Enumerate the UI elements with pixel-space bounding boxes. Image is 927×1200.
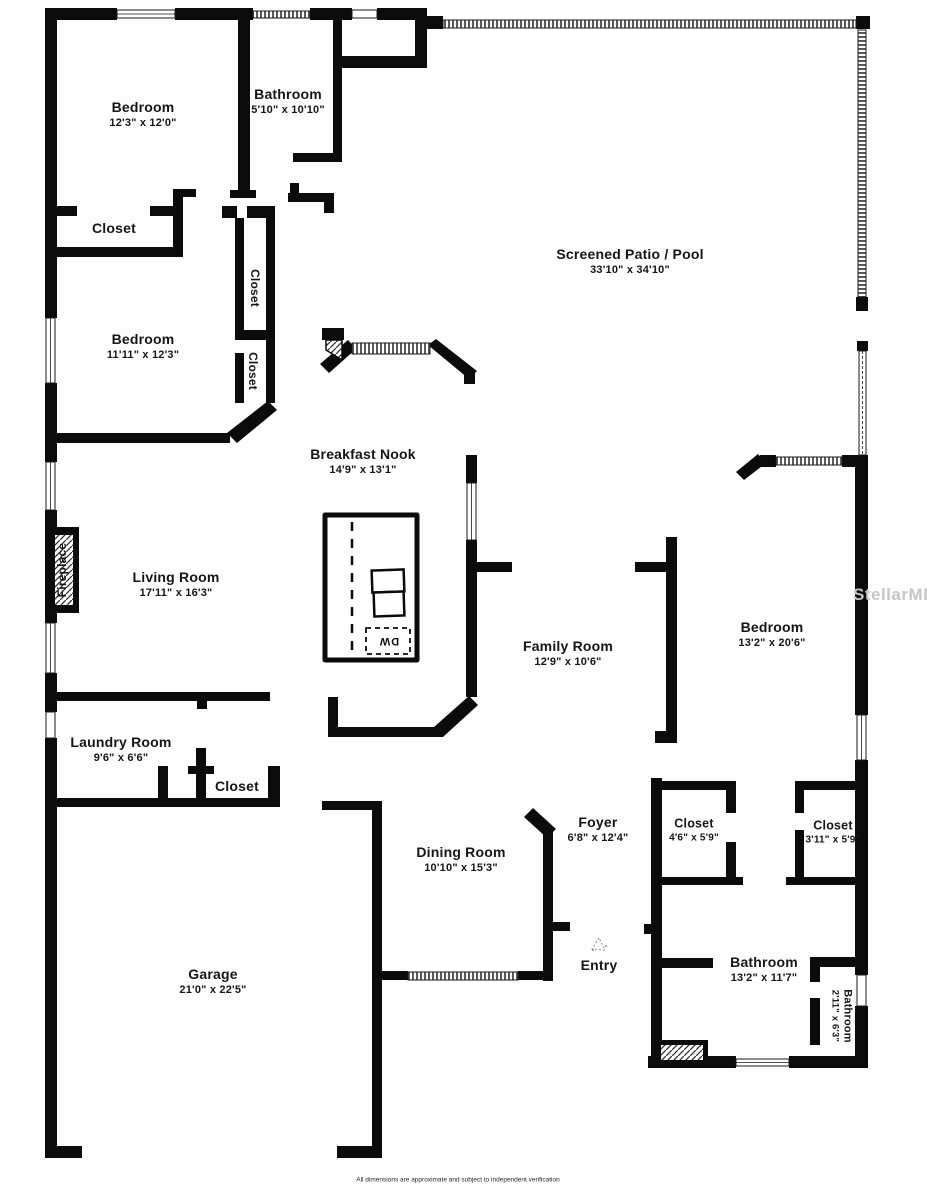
room-label-laundry-room: Laundry Room 9'6" x 6'6" xyxy=(70,733,171,765)
room-label-bathroom-3: Bathroom 2'11" x 6'3" xyxy=(828,989,855,1043)
sink-icon xyxy=(372,569,405,616)
room-dims: 5'10" x 10'10" xyxy=(251,103,325,117)
room-name: Bedroom xyxy=(112,330,175,348)
room-label-foyer: Foyer 6'8" x 12'4" xyxy=(568,813,629,845)
room-label-closet-1: Closet xyxy=(92,219,136,237)
disclaimer-text: All dimensions are approximate and subje… xyxy=(356,1177,559,1184)
room-name: Laundry Room xyxy=(70,733,171,751)
diagonal-walls xyxy=(227,339,766,838)
room-dims: 4'6" x 5'9" xyxy=(669,832,719,845)
room-dims: 14'9" x 13'1" xyxy=(329,463,396,477)
room-dims: 2'11" x 6'3" xyxy=(828,990,840,1042)
room-dims: 10'10" x 15'3" xyxy=(424,861,498,875)
floorplan: Bedroom 12'3" x 12'0" Bathroom 5'10" x 1… xyxy=(0,0,927,1200)
entry-marker-icon xyxy=(592,938,607,951)
room-dims: 12'9" x 10'6" xyxy=(534,655,601,669)
room-name: Family Room xyxy=(523,637,613,655)
room-label-closet-3: Closet xyxy=(244,352,260,390)
room-name: Closet xyxy=(244,352,260,390)
room-label-living-room: Living Room 17'11" x 16'3" xyxy=(133,568,220,600)
room-name: Bedroom xyxy=(112,98,175,116)
room-dims: 11'11" x 12'3" xyxy=(107,348,179,362)
room-dims: 13'2" x 20'6" xyxy=(738,636,805,650)
room-label-garage: Garage 21'0" x 22'5" xyxy=(179,965,246,997)
room-name: Dining Room xyxy=(416,843,505,861)
room-dims: 21'0" x 22'5" xyxy=(179,983,246,997)
room-dims: 13'2" x 11'7" xyxy=(731,971,798,985)
room-label-bedroom-1: Bedroom 12'3" x 12'0" xyxy=(109,98,176,130)
room-label-screened-patio-pool: Screened Patio / Pool 33'10" x 34'10" xyxy=(556,245,703,277)
room-name: Closet xyxy=(246,269,262,307)
room-name: Entry xyxy=(581,956,618,974)
room-name: Breakfast Nook xyxy=(310,445,416,463)
room-name: Bathroom xyxy=(840,989,854,1043)
room-name: Garage xyxy=(188,965,237,983)
room-dims: 6'8" x 12'4" xyxy=(568,831,629,845)
room-label-breakfast-nook: Breakfast Nook 14'9" x 13'1" xyxy=(310,445,416,477)
room-dims: 3'11" x 5'9" xyxy=(805,834,860,847)
room-name: Closet xyxy=(813,817,852,833)
fireplace-label: Fireplace xyxy=(55,543,71,598)
room-label-closet-laundry: Closet xyxy=(215,777,259,795)
room-name: Closet xyxy=(215,777,259,795)
room-label-bathroom-1: Bathroom 5'10" x 10'10" xyxy=(251,85,325,117)
dishwasher-label: DW xyxy=(379,635,399,647)
room-name: Closet xyxy=(92,219,136,237)
room-name: Screened Patio / Pool xyxy=(556,245,703,263)
room-dims: 17'11" x 16'3" xyxy=(140,586,213,600)
room-label-bathroom-2: Bathroom 13'2" x 11'7" xyxy=(730,953,798,985)
room-label-bedroom-3: Bedroom 13'2" x 20'6" xyxy=(738,618,805,650)
room-dims: 12'3" x 12'0" xyxy=(109,116,176,130)
room-dims: 9'6" x 6'6" xyxy=(94,751,149,765)
room-name: Bathroom xyxy=(254,85,322,103)
room-name: Foyer xyxy=(578,813,617,831)
shower-pan xyxy=(656,1040,708,1065)
room-name: Living Room xyxy=(133,568,220,586)
room-label-bedroom-2: Bedroom 11'11" x 12'3" xyxy=(107,330,179,362)
room-name: Fireplace xyxy=(55,543,71,598)
room-dims: 33'10" x 34'10" xyxy=(590,263,670,277)
room-label-entry: Entry xyxy=(581,956,618,974)
room-name: Bedroom xyxy=(741,618,804,636)
room-label-closet-2: Closet xyxy=(246,269,262,307)
windows xyxy=(46,10,866,1066)
room-label-dining-room: Dining Room 10'10" x 15'3" xyxy=(416,843,505,875)
stellar-mls-watermark: StellarMLS xyxy=(853,585,927,605)
kitchen-island xyxy=(325,515,417,660)
room-name: Bathroom xyxy=(730,953,798,971)
room-label-family-room: Family Room 12'9" x 10'6" xyxy=(523,637,613,669)
room-name: Closet xyxy=(674,815,713,831)
room-label-closet-foyer-2: Closet 3'11" x 5'9" xyxy=(805,817,860,846)
room-label-closet-foyer-1: Closet 4'6" x 5'9" xyxy=(669,815,719,844)
